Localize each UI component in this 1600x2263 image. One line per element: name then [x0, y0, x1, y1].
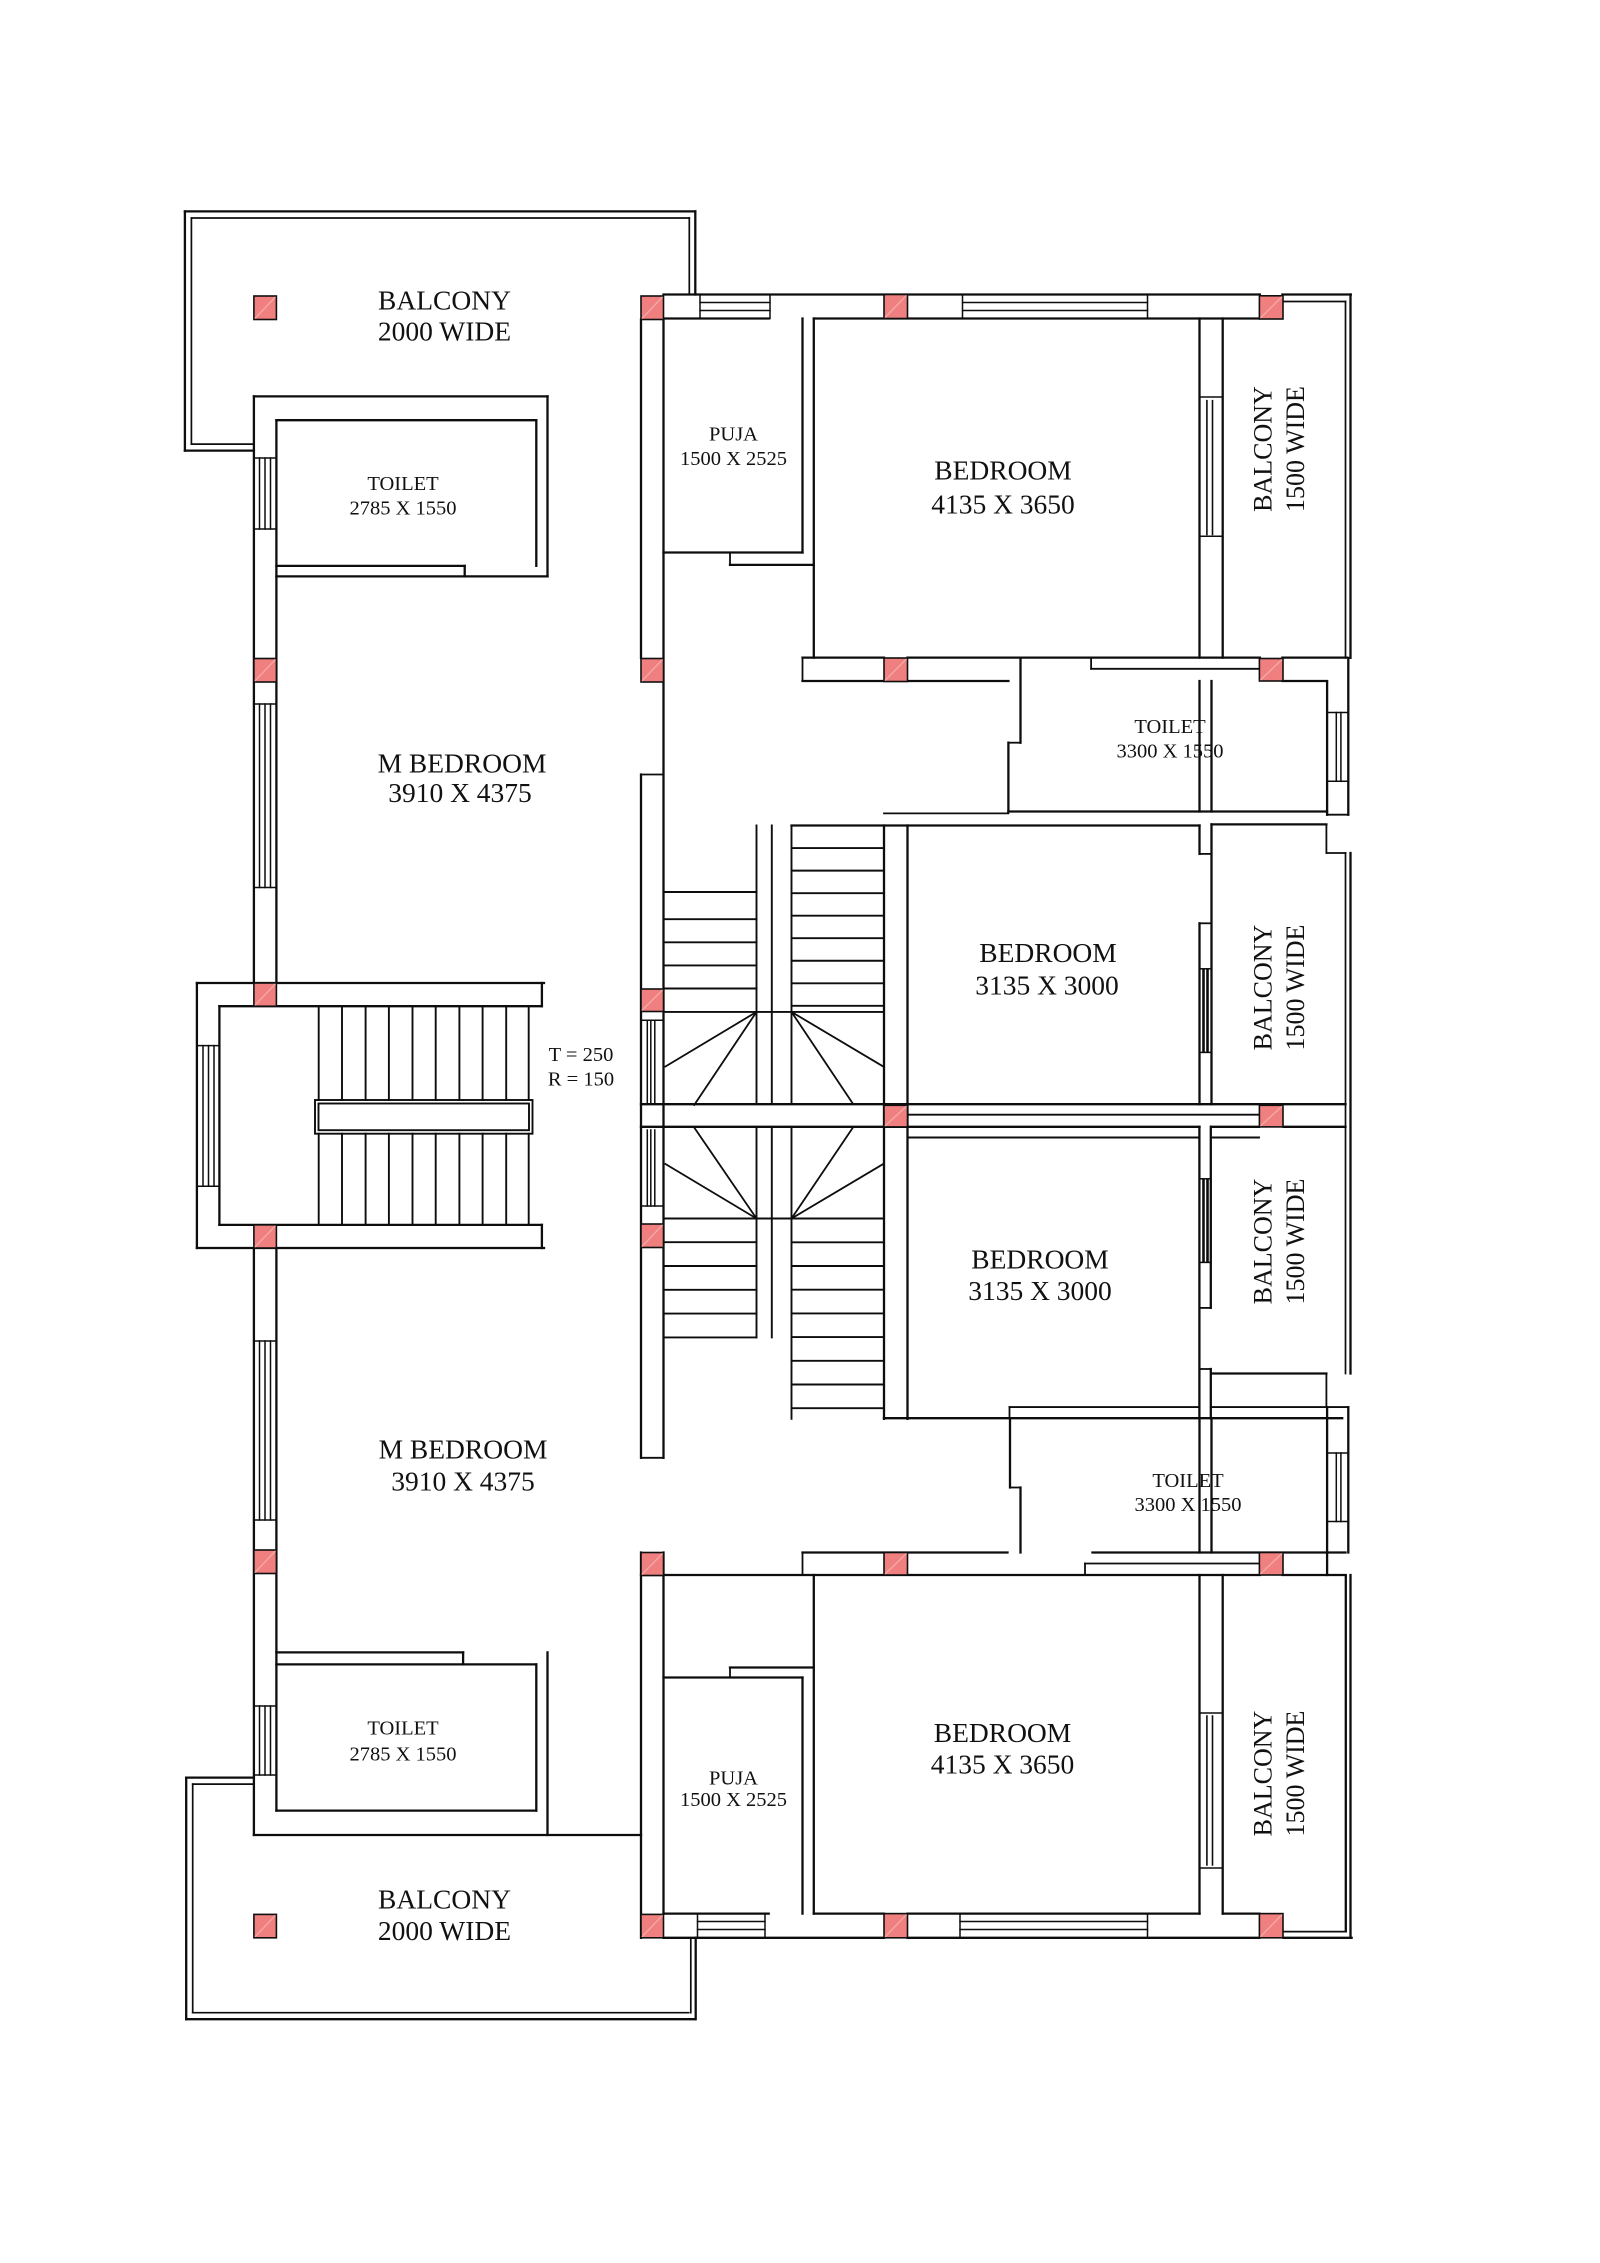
svg-text:M BEDROOM: M BEDROOM: [379, 1434, 548, 1465]
svg-text:BEDROOM: BEDROOM: [979, 937, 1117, 968]
svg-text:1500 WIDE: 1500 WIDE: [1281, 1179, 1310, 1305]
svg-text:TOILET: TOILET: [1134, 716, 1206, 738]
svg-text:BALCONY: BALCONY: [1249, 1710, 1278, 1836]
svg-text:4135 X 3650: 4135 X 3650: [931, 489, 1075, 520]
svg-text:1500 X 2525: 1500 X 2525: [680, 448, 787, 470]
svg-text:PUJA: PUJA: [709, 1768, 758, 1790]
svg-text:BALCONY: BALCONY: [1249, 1178, 1278, 1304]
svg-text:2000 WIDE: 2000 WIDE: [378, 1915, 511, 1946]
svg-text:R = 150: R = 150: [548, 1069, 614, 1091]
svg-text:BALCONY: BALCONY: [378, 1884, 511, 1915]
svg-text:TOILET: TOILET: [367, 473, 439, 495]
svg-text:PUJA: PUJA: [709, 424, 758, 446]
svg-text:1500 WIDE: 1500 WIDE: [1281, 1711, 1310, 1837]
svg-text:BALCONY: BALCONY: [378, 285, 511, 316]
svg-text:4135 X 3650: 4135 X 3650: [931, 1749, 1075, 1780]
svg-text:3910 X 4375: 3910 X 4375: [391, 1466, 535, 1497]
svg-text:BALCONY: BALCONY: [1249, 386, 1278, 512]
svg-text:3300 X 1550: 3300 X 1550: [1134, 1494, 1241, 1516]
svg-text:BEDROOM: BEDROOM: [971, 1244, 1109, 1275]
svg-text:3910 X 4375: 3910 X 4375: [388, 777, 532, 808]
svg-text:1500 X 2525: 1500 X 2525: [680, 1789, 787, 1811]
svg-text:3300 X 1550: 3300 X 1550: [1116, 741, 1223, 763]
svg-text:TOILET: TOILET: [1152, 1470, 1224, 1492]
svg-text:TOILET: TOILET: [367, 1718, 439, 1740]
svg-text:3135 X 3000: 3135 X 3000: [975, 970, 1119, 1001]
svg-text:2785 X 1550: 2785 X 1550: [349, 1744, 456, 1766]
svg-text:BALCONY: BALCONY: [1249, 924, 1278, 1050]
svg-text:1500 WIDE: 1500 WIDE: [1281, 386, 1310, 512]
svg-text:BEDROOM: BEDROOM: [934, 455, 1072, 486]
svg-text:BEDROOM: BEDROOM: [934, 1717, 1072, 1748]
svg-text:T = 250: T = 250: [549, 1044, 614, 1066]
svg-text:2785 X 1550: 2785 X 1550: [349, 498, 456, 520]
svg-text:M BEDROOM: M BEDROOM: [378, 748, 547, 779]
svg-text:1500 WIDE: 1500 WIDE: [1281, 925, 1310, 1051]
svg-text:3135 X 3000: 3135 X 3000: [968, 1275, 1112, 1306]
svg-text:2000 WIDE: 2000 WIDE: [378, 315, 511, 346]
